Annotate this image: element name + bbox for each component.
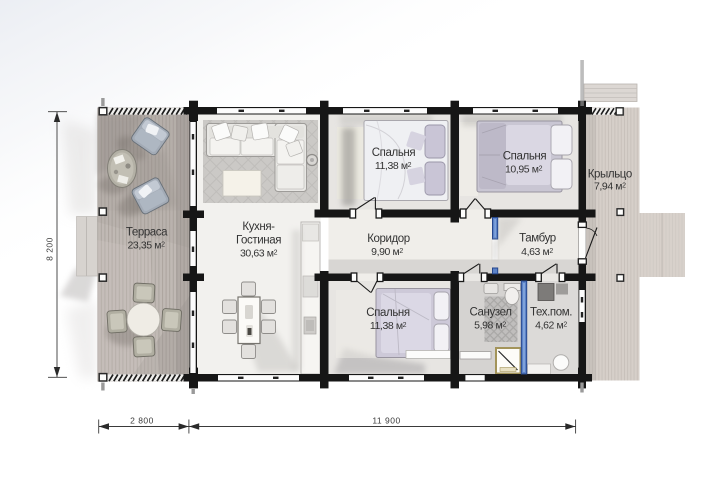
svg-text:Крыльцо: Крыльцо	[588, 169, 632, 181]
svg-text:Санузел: Санузел	[470, 307, 512, 319]
svg-text:11,38 м2: 11,38 м2	[370, 320, 407, 332]
svg-text:11,38 м2: 11,38 м2	[375, 160, 412, 172]
svg-text:4,62 м2: 4,62 м2	[535, 320, 567, 332]
svg-text:Спальня: Спальня	[366, 307, 410, 319]
svg-text:9,90 м2: 9,90 м2	[371, 246, 403, 258]
svg-text:Тех.пом.: Тех.пом.	[530, 307, 572, 319]
svg-text:8 200: 8 200	[45, 237, 55, 261]
svg-text:Спальня: Спальня	[503, 151, 547, 163]
svg-text:Спальня: Спальня	[372, 147, 416, 159]
svg-text:5,98 м2: 5,98 м2	[474, 320, 506, 332]
svg-text:11 900: 11 900	[372, 416, 400, 426]
svg-text:Кухня-: Кухня-	[242, 221, 275, 233]
svg-text:Коридор: Коридор	[367, 233, 410, 245]
svg-text:Гостиная: Гостиная	[236, 235, 281, 247]
svg-text:30,63 м2: 30,63 м2	[240, 248, 278, 260]
svg-text:23,35 м2: 23,35 м2	[127, 240, 165, 252]
svg-text:4,63 м2: 4,63 м2	[521, 246, 553, 258]
svg-text:10,95 м2: 10,95 м2	[505, 164, 543, 176]
svg-text:Терраса: Терраса	[126, 227, 168, 239]
svg-text:2 800: 2 800	[130, 416, 154, 426]
svg-text:7,94 м2: 7,94 м2	[594, 181, 626, 193]
svg-text:Тамбур: Тамбур	[519, 233, 556, 245]
